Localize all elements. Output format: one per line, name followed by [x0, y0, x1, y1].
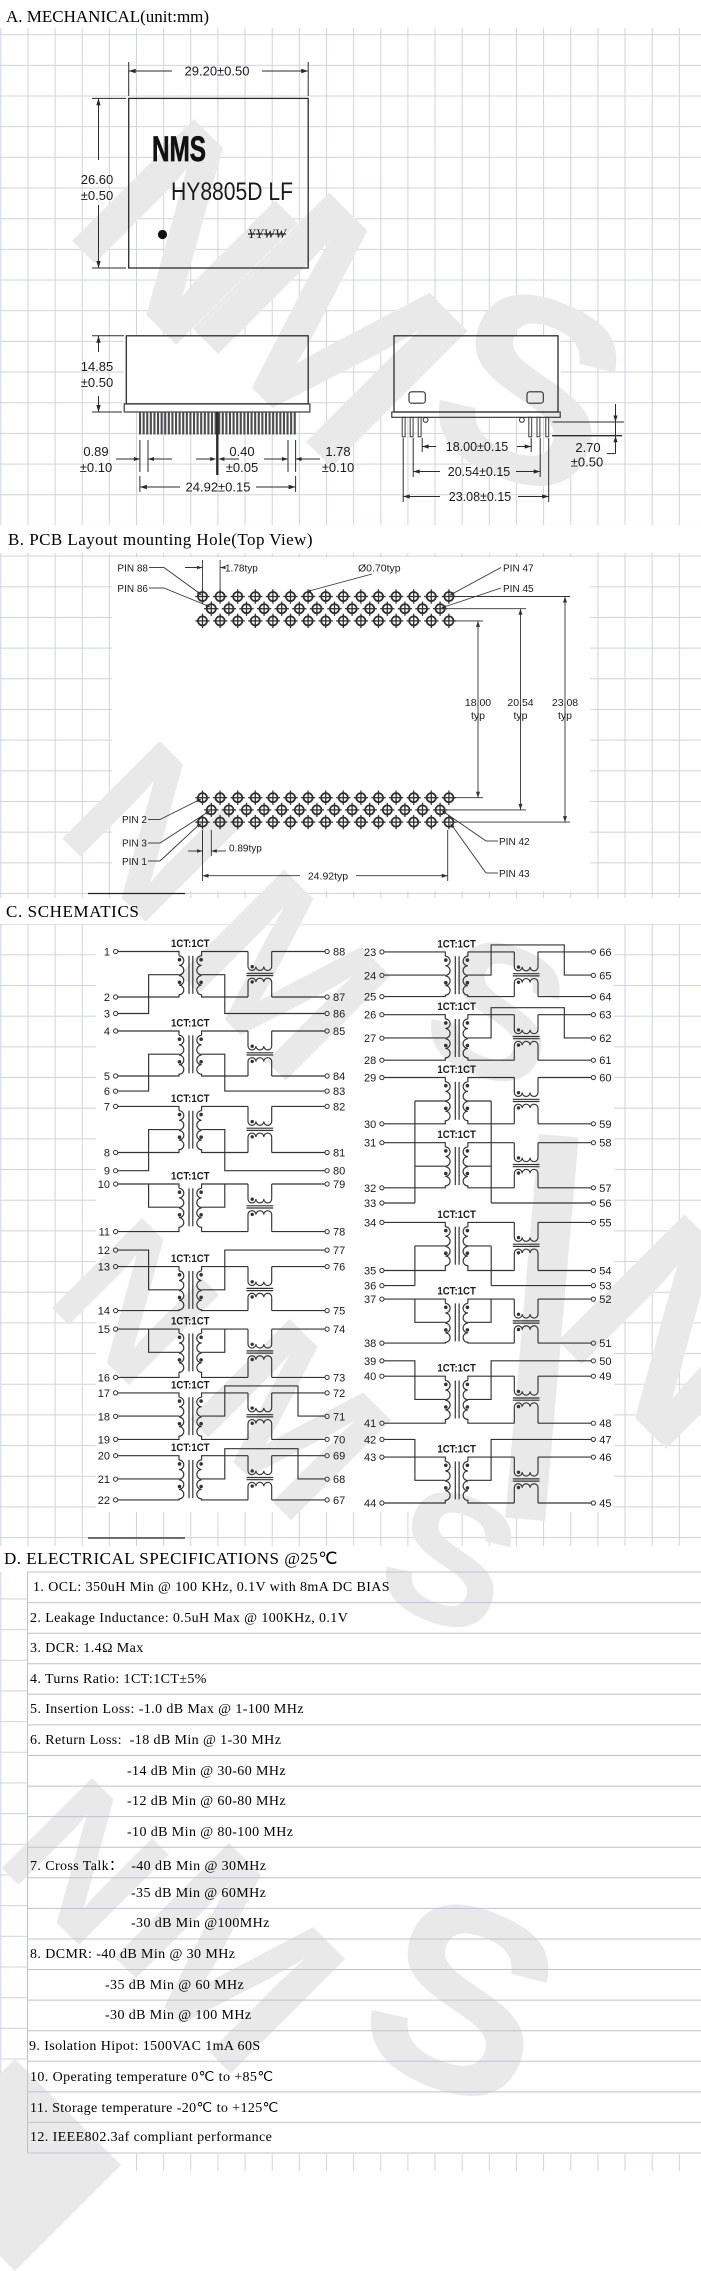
svg-text:1.78: 1.78: [325, 444, 350, 459]
svg-text:2: 2: [104, 992, 110, 1004]
svg-text:49: 49: [599, 1371, 611, 1383]
svg-text:47: 47: [599, 1434, 611, 1446]
svg-text:11: 11: [99, 1227, 110, 1239]
svg-text:28: 28: [364, 1055, 376, 1067]
svg-text:19: 19: [98, 1434, 110, 1446]
svg-text:0.89: 0.89: [83, 444, 108, 459]
svg-text:54: 54: [599, 1266, 611, 1278]
svg-text:88: 88: [333, 947, 345, 959]
svg-text:15: 15: [98, 1324, 110, 1336]
svg-text:31: 31: [364, 1138, 376, 1150]
svg-text:81: 81: [333, 1148, 345, 1160]
svg-text:PIN 45: PIN 45: [503, 584, 534, 595]
svg-text:58: 58: [599, 1138, 611, 1150]
svg-text:14: 14: [98, 1306, 110, 1318]
svg-text:42: 42: [364, 1434, 376, 1446]
svg-text:PIN 86: PIN 86: [117, 584, 148, 595]
svg-text:59: 59: [599, 1119, 611, 1131]
svg-text:72: 72: [333, 1388, 345, 1400]
svg-text:4: 4: [104, 1026, 110, 1038]
svg-text:27: 27: [364, 1033, 376, 1045]
svg-text:73: 73: [333, 1372, 345, 1384]
svg-text:18: 18: [98, 1411, 110, 1423]
svg-text:62: 62: [599, 1033, 611, 1045]
svg-text:18.00±0.15: 18.00±0.15: [446, 440, 509, 454]
svg-text:80: 80: [333, 1166, 345, 1178]
svg-text:PIN 2: PIN 2: [122, 815, 147, 826]
svg-text:29: 29: [364, 1073, 376, 1085]
svg-text:12: 12: [98, 1245, 110, 1257]
svg-text:34: 34: [364, 1217, 376, 1229]
svg-text:74: 74: [333, 1324, 345, 1336]
svg-text:7: 7: [104, 1101, 110, 1113]
svg-text:43: 43: [364, 1452, 376, 1464]
svg-text:17: 17: [98, 1388, 110, 1400]
svg-text:1CT:1CT: 1CT:1CT: [437, 1064, 476, 1076]
svg-text:23.08: 23.08: [552, 697, 578, 709]
svg-text:66: 66: [599, 947, 611, 959]
svg-text:±0.50: ±0.50: [571, 455, 603, 470]
svg-text:PIN 43: PIN 43: [499, 869, 530, 880]
svg-text:1CT:1CT: 1CT:1CT: [437, 1209, 476, 1221]
svg-text:typ: typ: [471, 710, 485, 722]
svg-text:53: 53: [599, 1281, 611, 1293]
svg-text:±0.50: ±0.50: [81, 188, 113, 203]
svg-text:20.54: 20.54: [507, 697, 533, 709]
svg-text:26: 26: [364, 1010, 376, 1022]
svg-text:70: 70: [333, 1434, 345, 1446]
svg-text:22: 22: [98, 1495, 110, 1507]
svg-text:55: 55: [599, 1217, 611, 1229]
svg-text:60: 60: [599, 1073, 611, 1085]
svg-text:24: 24: [364, 970, 376, 982]
svg-text:25: 25: [364, 992, 376, 1004]
svg-text:1CT:1CT: 1CT:1CT: [437, 1001, 476, 1013]
svg-text:1CT:1CT: 1CT:1CT: [437, 1286, 476, 1298]
svg-text:63: 63: [599, 1010, 611, 1022]
svg-text:35: 35: [364, 1266, 376, 1278]
svg-text:±0.10: ±0.10: [80, 460, 112, 475]
svg-text:PIN 42: PIN 42: [499, 837, 530, 848]
svg-text:46: 46: [599, 1452, 611, 1464]
svg-text:0.89typ: 0.89typ: [229, 844, 262, 855]
svg-text:1CT:1CT: 1CT:1CT: [171, 1316, 210, 1328]
svg-text:69: 69: [333, 1451, 345, 1463]
svg-text:24.92typ: 24.92typ: [308, 871, 348, 883]
svg-text:18.00: 18.00: [465, 697, 491, 709]
svg-text:87: 87: [333, 992, 345, 1004]
svg-text:50: 50: [599, 1356, 611, 1368]
svg-text:±0.10: ±0.10: [322, 460, 354, 475]
svg-text:1CT:1CT: 1CT:1CT: [171, 1171, 210, 1183]
svg-text:1CT:1CT: 1CT:1CT: [171, 1018, 210, 1030]
svg-text:14.85: 14.85: [81, 359, 114, 374]
svg-text:23: 23: [364, 947, 376, 959]
svg-text:57: 57: [599, 1183, 611, 1195]
svg-text:1CT:1CT: 1CT:1CT: [171, 938, 210, 950]
svg-text:26.60: 26.60: [81, 172, 114, 187]
svg-text:21: 21: [98, 1474, 110, 1486]
svg-text:86: 86: [333, 1009, 345, 1021]
svg-text:39: 39: [364, 1356, 376, 1368]
svg-text:1CT:1CT: 1CT:1CT: [437, 938, 476, 950]
svg-text:9: 9: [104, 1166, 110, 1178]
svg-text:82: 82: [333, 1101, 345, 1113]
svg-text:typ: typ: [558, 710, 572, 722]
svg-text:71: 71: [333, 1411, 345, 1423]
svg-text:65: 65: [599, 970, 611, 982]
svg-text:±0.05: ±0.05: [226, 460, 258, 475]
svg-text:20: 20: [98, 1451, 110, 1463]
svg-text:79: 79: [333, 1179, 345, 1191]
svg-text:61: 61: [599, 1055, 611, 1067]
svg-text:1CT:1CT: 1CT:1CT: [171, 1442, 210, 1454]
svg-text:52: 52: [599, 1294, 611, 1306]
svg-text:29.20±0.50: 29.20±0.50: [185, 64, 250, 79]
svg-text:HY8805D LF: HY8805D LF: [171, 178, 293, 206]
svg-text:1: 1: [104, 947, 110, 959]
svg-text:2.70: 2.70: [575, 440, 600, 455]
svg-text:48: 48: [599, 1418, 611, 1430]
svg-text:PIN 47: PIN 47: [503, 564, 534, 575]
svg-text:77: 77: [333, 1245, 345, 1257]
svg-text:1CT:1CT: 1CT:1CT: [437, 1363, 476, 1375]
svg-text:33: 33: [364, 1198, 376, 1210]
svg-text:85: 85: [333, 1026, 345, 1038]
svg-text:76: 76: [333, 1262, 345, 1274]
svg-text:1CT:1CT: 1CT:1CT: [437, 1129, 476, 1141]
svg-text:75: 75: [333, 1306, 345, 1318]
svg-text:8: 8: [104, 1148, 110, 1160]
svg-text:83: 83: [333, 1086, 345, 1098]
svg-text:56: 56: [599, 1198, 611, 1210]
svg-text:24.92±0.15: 24.92±0.15: [186, 480, 251, 495]
svg-text:YYWW: YYWW: [248, 226, 287, 241]
svg-text:3: 3: [104, 1009, 110, 1021]
svg-text:PIN 1: PIN 1: [122, 857, 147, 868]
svg-text:51: 51: [599, 1338, 611, 1350]
svg-text:1CT:1CT: 1CT:1CT: [437, 1444, 476, 1456]
svg-text:67: 67: [333, 1495, 345, 1507]
svg-text:±0.50: ±0.50: [81, 375, 113, 390]
svg-text:38: 38: [364, 1338, 376, 1350]
svg-text:PIN 3: PIN 3: [122, 839, 147, 850]
svg-text:1CT:1CT: 1CT:1CT: [171, 1379, 210, 1391]
svg-text:10: 10: [98, 1179, 110, 1191]
svg-text:1CT:1CT: 1CT:1CT: [171, 1093, 210, 1105]
svg-text:Ø0.70typ: Ø0.70typ: [358, 563, 401, 575]
svg-text:13: 13: [98, 1262, 110, 1274]
svg-text:40: 40: [364, 1371, 376, 1383]
svg-text:1.78typ: 1.78typ: [225, 564, 258, 575]
svg-text:0.40: 0.40: [229, 444, 254, 459]
svg-text:36: 36: [364, 1281, 376, 1293]
svg-text:PIN 88: PIN 88: [117, 564, 148, 575]
svg-text:84: 84: [333, 1071, 345, 1083]
svg-text:41: 41: [364, 1418, 376, 1430]
svg-text:78: 78: [333, 1227, 345, 1239]
svg-text:30: 30: [364, 1119, 376, 1131]
svg-text:20.54±0.15: 20.54±0.15: [448, 465, 511, 479]
svg-text:64: 64: [599, 992, 611, 1004]
svg-text:NMS: NMS: [152, 130, 206, 169]
svg-text:5: 5: [104, 1071, 110, 1083]
svg-text:1CT:1CT: 1CT:1CT: [171, 1253, 210, 1265]
svg-text:6: 6: [104, 1086, 110, 1098]
svg-text:37: 37: [364, 1294, 376, 1306]
svg-text:32: 32: [364, 1183, 376, 1195]
svg-text:45: 45: [599, 1498, 611, 1510]
svg-text:typ: typ: [513, 710, 527, 722]
svg-text:23.08±0.15: 23.08±0.15: [449, 490, 512, 504]
svg-text:68: 68: [333, 1474, 345, 1486]
svg-text:16: 16: [98, 1372, 110, 1384]
svg-text:44: 44: [364, 1498, 376, 1510]
